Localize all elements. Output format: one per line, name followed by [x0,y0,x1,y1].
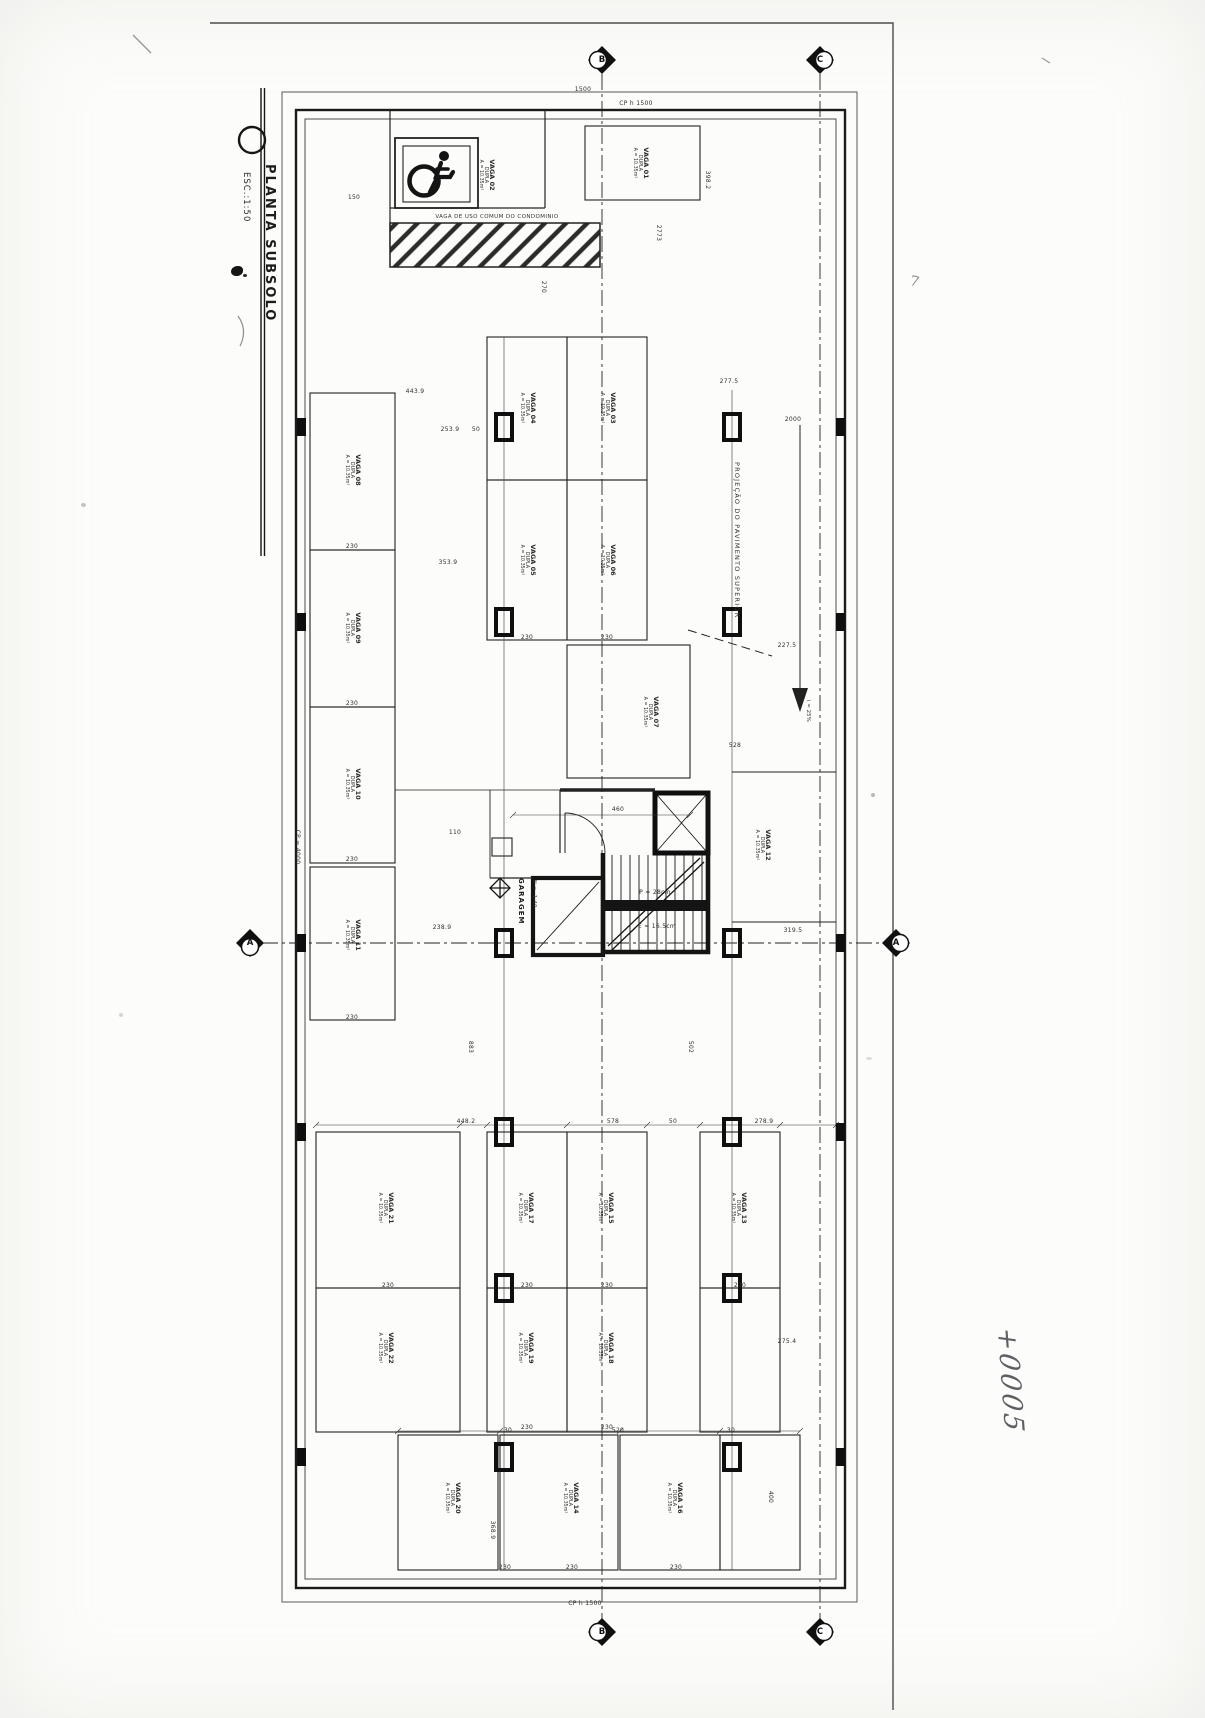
stall-label: VAGA 06 DUPLA A = 10.35m² [598,544,616,575]
page-title: PLANTA SUBSOLO [263,164,276,322]
scan-speck [866,1057,872,1060]
dimension-text: 230 [499,1565,511,1571]
dimension-text: 277.5 [720,379,739,385]
stall-label: VAGA 14 DUPLA A = 10.35m² [561,1482,579,1513]
dimension-text: 353.9 [439,560,458,566]
section-marker-letter: B [599,1628,605,1637]
dimension-text: 230 [521,1425,533,1431]
dimension-text: 230 [566,1565,578,1571]
stall-label: VAGA 13 DUPLA A = 10.35m² [729,1192,747,1223]
garage-level-label: N = -1.40 [531,880,536,908]
stall-label: VAGA 02 DUPLA A = 10.35m² [477,159,495,190]
garage-label: GARAGEM [517,878,524,924]
dimension-text: 460 [612,807,624,813]
common-stall-label: VAGA DE USO COMUM DO CONDOMINIO [412,214,582,220]
title-block-symbol [239,88,265,556]
dimension-text: 230 [346,1015,358,1021]
elevator-shaft [655,793,708,853]
dimension-text: CP h 1500 [619,101,652,107]
dimension-text: 230 [382,1283,394,1289]
stall-label: VAGA 17 DUPLA A = 10.35m² [516,1192,534,1223]
dimension-text: 578 [607,1119,619,1125]
section-marker-symbols [236,46,910,1646]
stall-label: VAGA 19 DUPLA A = 10.35m² [516,1332,534,1363]
section-marker-letter: A [893,939,900,948]
stall-label: VAGA 21 DUPLA A = 10.35m² [376,1192,394,1223]
dimension-text: 520 [612,1428,624,1434]
dimension-text: 230 [601,635,613,641]
dimension-text: CP = 4000 [294,830,300,865]
section-lines [262,74,884,1619]
ink-blob-satellite [243,274,247,277]
stall-label: VAGA 04 DUPLA A = 10.35m² [518,392,536,423]
stall-label: VAGA 07 DUPLA A = 10.35m² [641,696,659,727]
dimension-text: 230 [346,701,358,707]
common-stall-hatch [390,223,600,267]
stall-label: VAGA 08 DUPLA A = 10.35m² [343,454,361,485]
dimension-text: E = 16.5cm [638,924,676,930]
section-marker-letter: B [599,56,605,65]
dimension-text: 230 [601,1283,613,1289]
dimension-text: 2000 [785,417,801,423]
stall-label: VAGA 10 DUPLA A = 10.35m² [343,768,361,799]
stall-label: VAGA 11 DUPLA A = 10.35m² [343,919,361,950]
scan-speck [81,503,86,507]
section-marker-letter: C [817,56,823,65]
stall-label: VAGA 09 DUPLA A = 10.35m² [343,612,361,643]
dimension-text: 278.9 [755,1119,774,1125]
dimension-text: 238.9 [433,925,452,931]
dimension-text: 528 [729,743,741,749]
section-marker-letter: C [817,1628,823,1637]
core-lobby [395,790,655,878]
dimension-text: 319.5 [784,928,803,934]
level-marker-icon [490,878,510,898]
section-marker-letter: A [247,939,254,948]
wall-pilasters [297,418,845,1466]
ramp-slope-label: i = 25% [805,700,811,722]
dimension-text: 230 [521,1283,533,1289]
dimension-text: 230 [734,1283,746,1289]
ramp-projection-label: PROJEÇÃO DO PAVIMENTO SUPERIOR [734,462,741,618]
dimension-text: 275.4 [778,1339,797,1345]
scanned-floor-plan-page: PLANTA SUBSOLO ESC.:1:50 VAGA DE USO COM… [0,0,1205,1718]
dimension-text: 230 [521,635,533,641]
dimension-text: 400 [767,1491,773,1503]
dimension-text: 253.9 [441,427,460,433]
dimension-text: 150 [348,195,360,201]
dimension-text: 230 [346,857,358,863]
stall-label: VAGA 16 DUPLA A = 10.35m² [665,1482,683,1513]
dimension-text: 230 [346,544,358,550]
dimension-text: 270 [540,281,546,293]
scan-speck [871,793,875,797]
stall-label: VAGA 18 DUPLA A = 10.35m² [596,1332,614,1363]
plan-linework [0,0,1205,1718]
dimension-text: 230 [601,1425,613,1431]
stall-label: VAGA 22 DUPLA A = 10.35m² [376,1332,394,1363]
stall-label: VAGA 03 DUPLA A = 10.35m² [598,392,616,423]
pencil-squiggle [238,316,244,346]
dimension-text: 230 [670,1565,682,1571]
dimension-text: 110 [449,830,461,836]
dimension-text: P = 28cm [639,890,671,896]
dimension-text: 50 [669,1119,677,1125]
dimension-text: 227.5 [778,643,797,649]
dimension-text: 883 [467,1041,473,1053]
stall-label: VAGA 20 DUPLA A = 10.35m² [443,1482,461,1513]
stall-label: VAGA 12 DUPLA A = 10.35m² [753,829,771,860]
plan-scale: ESC.:1:50 [242,172,251,222]
dimension-text: 2773 [655,225,661,241]
dimension-text: 368.9 [489,1521,495,1540]
dimension-text: 502 [687,1041,693,1053]
dimension-text: CP h 1500 [568,1601,601,1607]
dimension-text: 30 [727,1428,735,1434]
dimension-text: 30 [504,1428,512,1434]
dimension-text: 443.9 [406,389,425,395]
scan-scratch [133,35,151,53]
scan-speck [119,1013,123,1017]
stall-label: VAGA 15 DUPLA A = 10.35m² [596,1192,614,1223]
dimension-text: 50 [472,427,480,433]
scan-scratch-2 [1042,58,1050,63]
dimension-text: 1500 [575,87,591,93]
dimension-text: 448.2 [457,1119,476,1125]
dimension-text: 398.2 [704,171,710,190]
wheelchair-icon [410,151,454,196]
stall-label: VAGA 05 DUPLA A = 10.35m² [518,544,536,575]
stall-label: VAGA 01 DUPLA A = 10.35m² [631,147,649,178]
